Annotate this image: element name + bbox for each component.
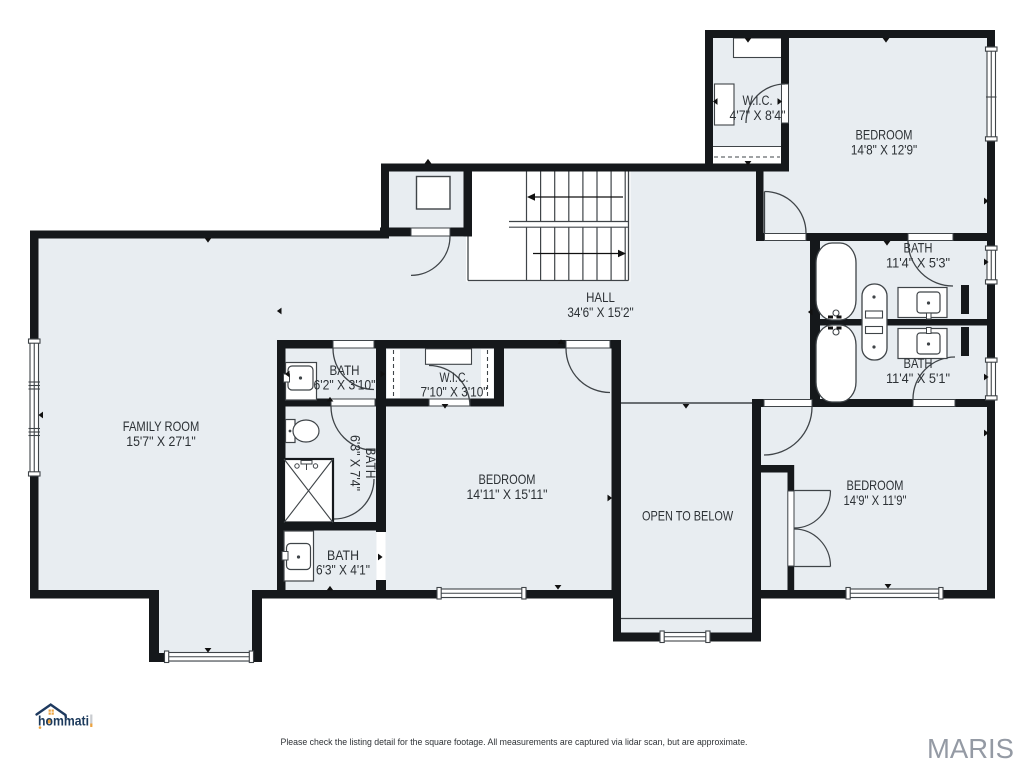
svg-text:BEDROOM14'11" X 15'11": BEDROOM14'11" X 15'11" (467, 471, 548, 502)
svg-text:BEDROOM14'9" X 11'9": BEDROOM14'9" X 11'9" (844, 477, 907, 508)
svg-text:OPEN TO BELOW: OPEN TO BELOW (642, 508, 734, 524)
svg-text:MARIS: MARIS (927, 733, 1014, 764)
svg-text:hommati: hommati (38, 714, 89, 729)
svg-text:BEDROOM14'8" X 12'9": BEDROOM14'8" X 12'9" (851, 127, 917, 158)
svg-text:FAMILY ROOM15'7" X 27'1": FAMILY ROOM15'7" X 27'1" (123, 418, 200, 449)
svg-text:Please check the listing detai: Please check the listing detail for the … (281, 737, 748, 747)
